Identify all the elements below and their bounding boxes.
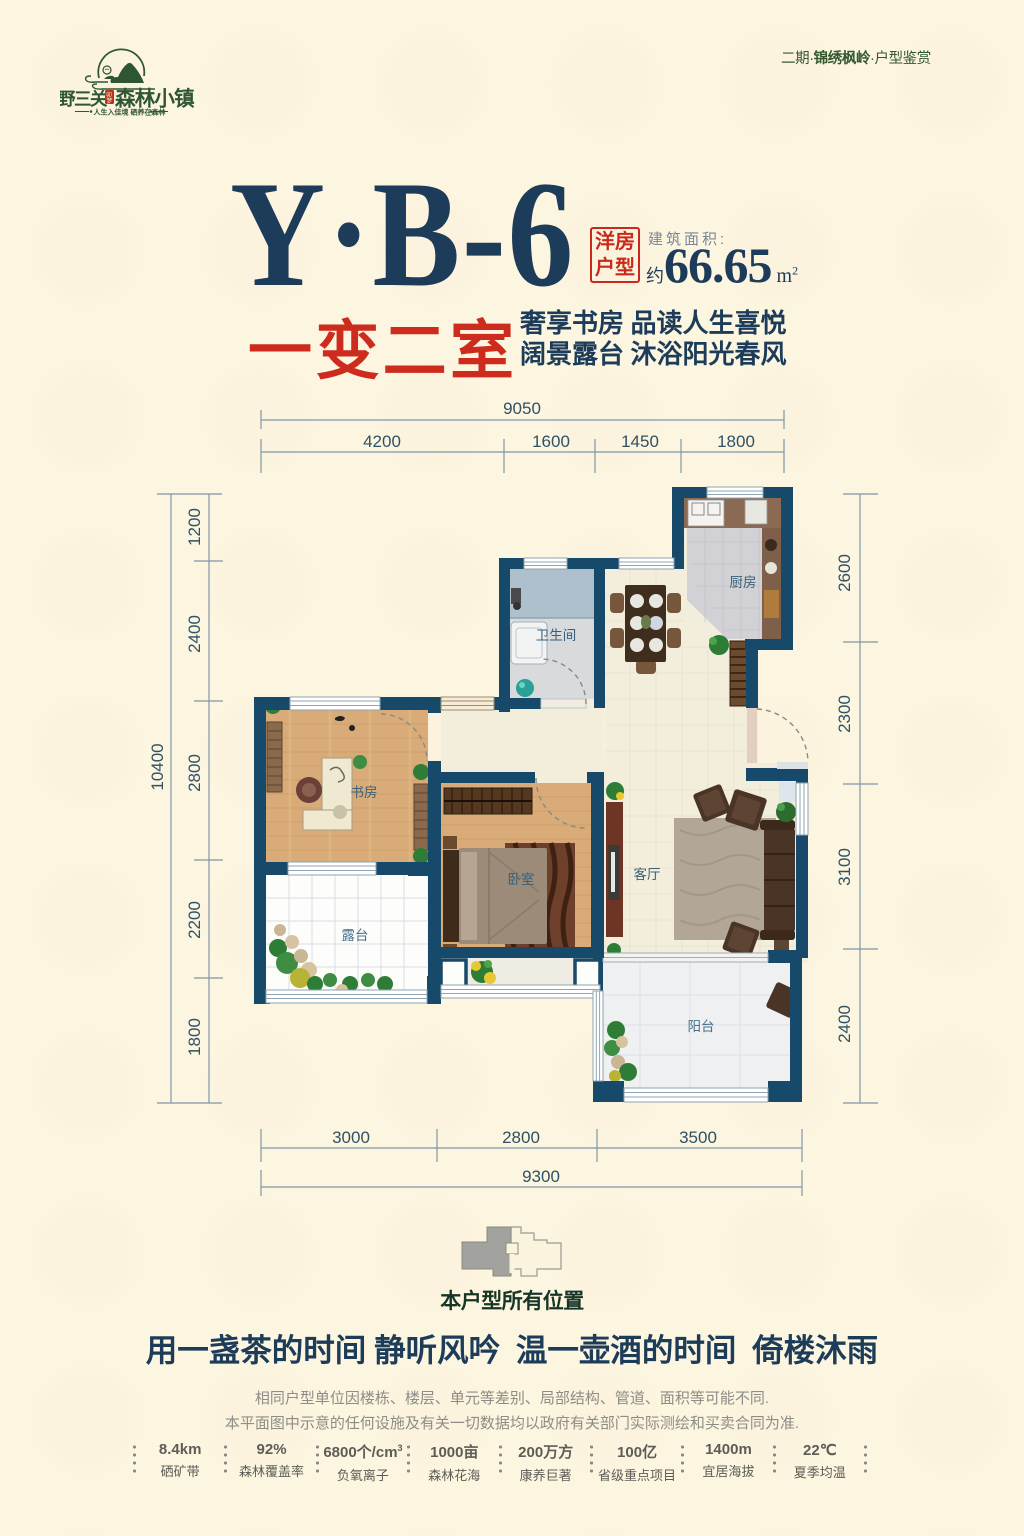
svg-text:9300: 9300: [522, 1167, 560, 1186]
svg-text:2800: 2800: [185, 754, 204, 792]
svg-text:1200: 1200: [185, 508, 204, 546]
svg-text:2800: 2800: [502, 1128, 540, 1147]
svg-text:10400: 10400: [148, 743, 167, 790]
svg-text:2600: 2600: [835, 554, 854, 592]
svg-text:9050: 9050: [503, 399, 541, 418]
svg-text:4200: 4200: [363, 432, 401, 451]
svg-text:野三关: 野三关: [60, 89, 108, 109]
svg-text:森林小镇: 森林小镇: [115, 87, 195, 111]
svg-text:客厅: 客厅: [634, 866, 661, 882]
svg-text:厨房: 厨房: [730, 575, 757, 590]
svg-text:2400: 2400: [835, 1005, 854, 1043]
svg-text:卫生间: 卫生间: [536, 628, 577, 643]
svg-text:1450: 1450: [621, 432, 659, 451]
svg-text:露台: 露台: [342, 928, 369, 943]
svg-text:2200: 2200: [185, 901, 204, 939]
svg-text:1800: 1800: [185, 1018, 204, 1056]
svg-text:2400: 2400: [185, 615, 204, 653]
svg-text:阳台: 阳台: [688, 1019, 715, 1034]
svg-text:3100: 3100: [835, 848, 854, 886]
svg-text:3500: 3500: [679, 1128, 717, 1147]
svg-text:1800: 1800: [717, 432, 755, 451]
svg-text:梦: 梦: [107, 97, 113, 105]
svg-text:2300: 2300: [835, 695, 854, 733]
svg-text:卧室: 卧室: [508, 871, 535, 887]
svg-text:人生入佳境 硒养在森林: 人生入佳境 硒养在森林: [94, 108, 167, 117]
svg-text:1600: 1600: [532, 432, 570, 451]
svg-text:卯: 卯: [106, 91, 112, 99]
svg-text:书房: 书房: [351, 785, 378, 800]
svg-text:3000: 3000: [332, 1128, 370, 1147]
